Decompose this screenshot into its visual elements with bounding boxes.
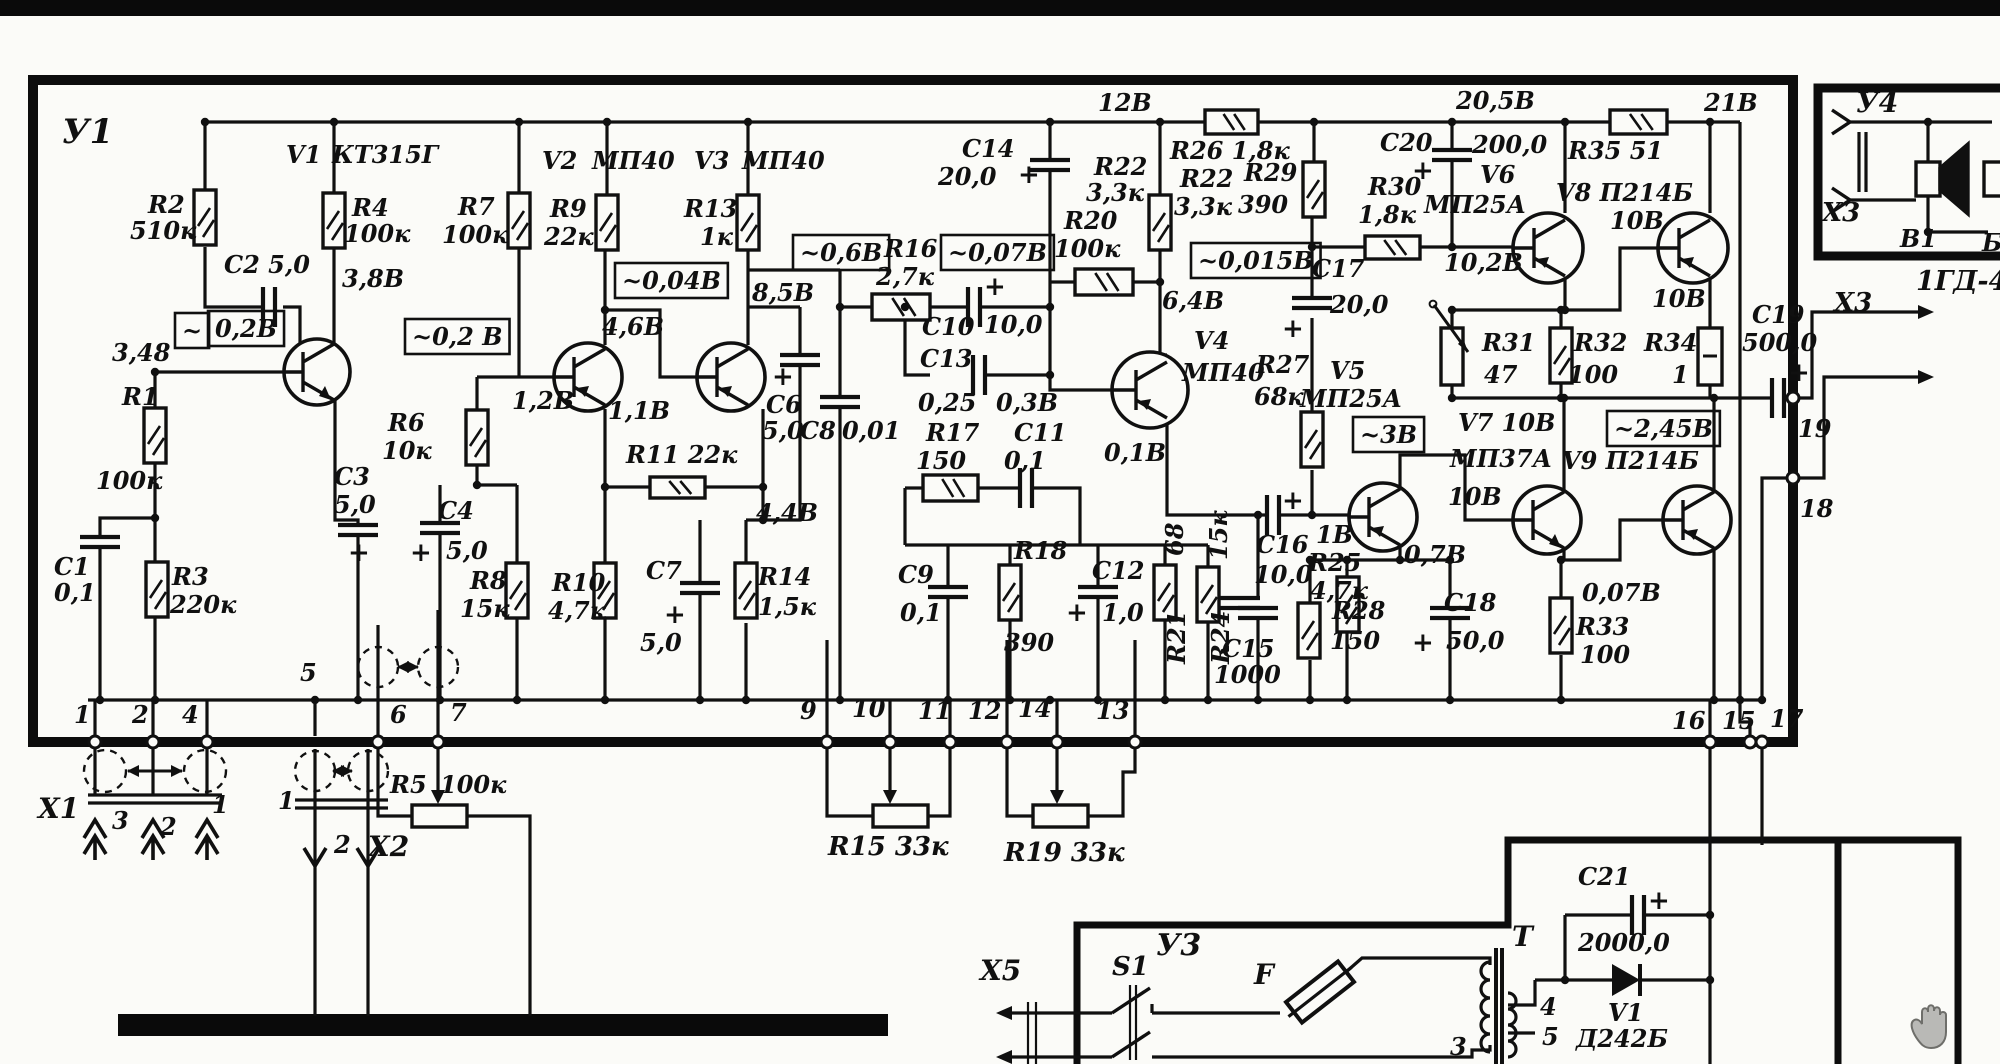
board-pin (1787, 392, 1799, 404)
schematic-label-component: 150 (1330, 626, 1380, 655)
capacitor (1772, 378, 1784, 418)
schematic-label-component: МП40 (591, 146, 675, 175)
schematic-label-component: R33 (1575, 612, 1629, 641)
junction-dot (601, 696, 609, 704)
resistor (1610, 110, 1667, 134)
schematic-label-component: R28 (1331, 596, 1386, 625)
schematic-label-pin: 7 (450, 698, 467, 727)
schematic-label-pin: 16 (1672, 706, 1706, 735)
board-pin (821, 736, 833, 748)
schematic-label-voltage: 20,5В (1455, 86, 1535, 115)
schematic-label-pin: 4 (182, 700, 199, 729)
schematic-label-component: R32 (1573, 328, 1627, 357)
mains-arrow-icon (996, 1050, 1012, 1064)
junction-dot (1156, 118, 1164, 126)
speaker-icon-2 (1984, 162, 2000, 196)
schematic-page: У1V1КТ315ГR2510кC2 5,0R4100к3,8В~0,2В3,4… (0, 0, 2000, 1064)
junction-dot (1758, 696, 1766, 704)
junction-dot (836, 696, 844, 704)
hand-cursor-icon[interactable] (1912, 1005, 1946, 1048)
diode-icon (1612, 964, 1640, 996)
connector-arrow-icons (1832, 110, 1850, 212)
schematic-label-component: C4 (438, 496, 474, 525)
junction-dot (1706, 911, 1714, 919)
schematic-label-component: 4,7к (548, 596, 607, 625)
schematic-label-component: 100 (1568, 360, 1618, 389)
schematic-label-component: 47 (1484, 360, 1518, 389)
schematic-label-component: R9 (549, 194, 587, 223)
junction-dot (1448, 394, 1456, 402)
schematic-label-polarity: + (348, 538, 370, 568)
schematic-label-polarity: + (664, 600, 686, 630)
board-pin (1001, 736, 1013, 748)
schematic-label-pin: 14 (1018, 694, 1051, 723)
junction-dot (1706, 118, 1714, 126)
schematic-label-voltage: 3,8В (342, 264, 404, 293)
schematic-label-component: 510к (130, 216, 197, 245)
schematic-label-voltage: 0,25 (918, 388, 976, 417)
schematic-label-component: 15к (460, 594, 510, 623)
schematic-label-component: 1ГД-4 (1916, 266, 2000, 297)
junction-dot (1046, 118, 1054, 126)
schematic-label-component: R14 (757, 562, 811, 591)
junction-dot (1204, 696, 1212, 704)
schematic-label-pin: 1 (212, 790, 229, 819)
board-pin (372, 736, 384, 748)
schematic-label-component: 10,0 (984, 310, 1043, 339)
schematic-label-voltage: 12В (1098, 88, 1152, 117)
schematic-label-component: 2000,0 (1577, 928, 1670, 957)
capacitor (680, 583, 720, 593)
schematic-label-voltage: 10В (1652, 284, 1706, 313)
junction-dot (201, 118, 209, 126)
junction-dot (1161, 696, 1169, 704)
junction-dot (96, 696, 104, 704)
capacitor (1432, 150, 1472, 160)
schematic-label-pin: 1 (74, 700, 91, 729)
schematic-label-component: 10,0 (1254, 560, 1313, 589)
schematic-label-component: R6 (387, 408, 425, 437)
junction-dot (436, 696, 444, 704)
schematic-label-voltage: 0,1В (1104, 438, 1166, 467)
capacitor (338, 525, 378, 535)
schematic-label-component: 150 (916, 446, 966, 475)
schematic-label-pin: 2 (159, 812, 177, 841)
board-pin (89, 736, 101, 748)
resistor (1075, 269, 1133, 295)
schematic-label-component: R18 (1013, 536, 1068, 565)
schematic-label-connector: X5 (978, 954, 1021, 987)
schematic-label-component: 68к (1254, 382, 1304, 411)
schematic-label-voltage: ~0,2 В (412, 322, 503, 351)
schematic-label-pin: 3 (1450, 1032, 1467, 1061)
schematic-label-component: C8 (800, 416, 836, 445)
schematic-label-pin: 10 (852, 694, 886, 723)
schematic-label-component: C15 (1222, 634, 1275, 663)
schematic-label-component: C11 (1014, 418, 1067, 447)
schematic-label-pin: 3 (112, 806, 129, 835)
schematic-label-component: R34 (1643, 328, 1697, 357)
schematic-label-polarity: + (1282, 486, 1304, 516)
capacitor (1078, 587, 1118, 597)
schematic-label-polarity: + (1412, 628, 1434, 658)
junction-dot (1557, 556, 1565, 564)
schematic-label-component: 100к (96, 466, 163, 495)
schematic-label-component: 68 (1160, 522, 1189, 556)
schematic-label-component: C20 (1380, 128, 1433, 157)
schematic-label-component: 1,8к (1358, 200, 1417, 229)
schematic-label-component: 1,5к (758, 592, 817, 621)
schematic-label-component: V4 (1194, 326, 1229, 355)
schematic-label-component: C13 (920, 344, 973, 373)
schematic-label-component: МП37А (1449, 444, 1552, 473)
capacitor (1292, 298, 1332, 308)
schematic-label-polarity: + (984, 272, 1006, 302)
schematic-label-component: R11 22к (625, 440, 738, 469)
signal-arrow-icon (1918, 370, 1934, 384)
schematic-label-component: C19 (1752, 300, 1805, 329)
schematic-label-polarity: + (1788, 358, 1810, 388)
schematic-label-component: 15к (1204, 510, 1233, 560)
schematic-label-component: 390 (1004, 628, 1054, 657)
schematic-label-polarity: + (1648, 886, 1670, 916)
schematic-label-polarity: + (1282, 314, 1304, 344)
schematic-label-component: 1000 (1214, 660, 1281, 689)
schematic-label-component: КТ315Г (331, 140, 440, 169)
schematic-label-component: 20,0 (937, 162, 997, 191)
junction-dot (742, 696, 750, 704)
board-pin (944, 736, 956, 748)
schematic-label-connector: X3 (1832, 288, 1872, 318)
schematic-label-component: V8 П214Б (1556, 178, 1693, 207)
board-pin (201, 736, 213, 748)
schematic-label-voltage: 10В (1448, 482, 1502, 511)
schematic-label-pin: 13 (1096, 696, 1129, 725)
schematic-label-component: C21 (1578, 862, 1631, 891)
junction-dot (1343, 696, 1351, 704)
schematic-label-component: C18 (1444, 588, 1497, 617)
schematic-label-voltage: 6,4В (1162, 286, 1224, 315)
schematic-label-component: R3 (171, 562, 209, 591)
schematic-label-voltage: ~0,015В (1198, 246, 1314, 275)
board-pin (1129, 736, 1141, 748)
speaker-icon (1916, 144, 1968, 214)
potentiometer (1033, 805, 1088, 827)
schematic-label-component: 100к (440, 770, 507, 799)
scan-top-bar (0, 0, 2000, 16)
junction-dot (1561, 976, 1569, 984)
junction-dot (473, 481, 481, 489)
capacitor (928, 587, 968, 597)
schematic-label-voltage: 1,2В (512, 386, 574, 415)
schematic-label-voltage: 0,3В (996, 388, 1058, 417)
capacitor (1220, 598, 1260, 608)
schematic-label-component: 390 (1238, 190, 1288, 219)
junction-dot (1156, 278, 1164, 286)
schematic-label-component: МП25А (1299, 384, 1402, 413)
capacitor (820, 397, 860, 407)
schematic-label-module: У4 (1856, 86, 1898, 119)
schematic-label-pin: 9 (800, 696, 817, 725)
schematic-label-component: 50,0 (1446, 626, 1505, 655)
schematic-label-component: V2 (542, 146, 577, 175)
schematic-label-component: V1 (286, 140, 321, 169)
schematic-label-pin: 15 (1722, 706, 1755, 735)
schematic-label-pin: 11 (918, 696, 951, 725)
schematic-label-component: 3,3к (1174, 192, 1233, 221)
schematic-label-component: R15 33к (827, 832, 949, 862)
schematic-label-component: R25 (1307, 548, 1361, 577)
schematic-label-component: 1 (1672, 360, 1689, 389)
junction-dot (1561, 118, 1569, 126)
schematic-label-voltage: 8,5В (751, 278, 814, 307)
schematic-label-component: R22 (1179, 164, 1233, 193)
schematic-label-component: 0,1 (1004, 446, 1046, 475)
junction-dot (311, 696, 319, 704)
schematic-label-voltage: ~0,04В (622, 266, 721, 295)
schematic-label-connector: X3 (1820, 198, 1860, 228)
schematic-label-pin: 2 (333, 830, 351, 859)
schematic-label-component: R2 (147, 190, 185, 219)
junction-dot (151, 514, 159, 522)
trimmer-resistor (1441, 328, 1463, 385)
junction-dot (1254, 696, 1262, 704)
schematic-label-component: 20,0 (1329, 290, 1389, 319)
schematic-label-voltage: 0,07В (1582, 578, 1661, 607)
mains-arrow-icon (996, 1006, 1012, 1020)
schematic-label-component: 22к (543, 222, 594, 251)
junction-dot (330, 118, 338, 126)
schematic-label-component: C7 (646, 556, 682, 585)
junction-dot (1396, 556, 1404, 564)
junction-dot (1046, 371, 1054, 379)
circuit-schematic: У1V1КТ315ГR2510кC2 5,0R4100к3,8В~0,2В3,4… (0, 0, 2000, 1064)
schematic-label-component: 5,0 (334, 490, 376, 519)
schematic-label-component: 100к (442, 220, 509, 249)
board-pin (1704, 736, 1716, 748)
junction-dot (1736, 696, 1744, 704)
capacitor (1267, 495, 1279, 535)
schematic-label-voltage: ~0,07В (948, 238, 1047, 267)
signal-arrow-icon (1918, 305, 1934, 319)
schematic-label-component: R10 (551, 568, 606, 597)
schematic-label-voltage: ~0,6В (800, 238, 882, 267)
schematic-label-component: C10 (922, 312, 975, 341)
schematic-label-polarity: + (772, 362, 794, 392)
cable-arrow-icon (196, 820, 218, 860)
schematic-label-component: R30 (1367, 172, 1422, 201)
resistor (923, 475, 978, 501)
schematic-label-pin: 5 (1542, 1022, 1559, 1051)
module-u2-top-edge (118, 1014, 888, 1036)
junction-dot (601, 483, 609, 491)
schematic-label-component: Д242Б (1575, 1024, 1668, 1053)
fuse-icon (1280, 957, 1359, 1027)
schematic-label-component: V9 П214Б (1562, 446, 1699, 475)
board-pin (147, 736, 159, 748)
junction-dot (1254, 511, 1262, 519)
junction-dot (1557, 696, 1565, 704)
schematic-label-component: R20 (1063, 206, 1118, 235)
schematic-label-component: F (1253, 958, 1276, 991)
junction-dot (1706, 976, 1714, 984)
schematic-label-component: C17 (1312, 254, 1365, 283)
cable-arrow-icon (84, 820, 106, 860)
schematic-label-component: R17 (925, 418, 980, 447)
resistor (1205, 110, 1258, 134)
board-pin (1756, 736, 1768, 748)
schematic-label-voltage: 10В (1610, 206, 1664, 235)
junction-dot (1448, 118, 1456, 126)
schematic-label-module: У3 (1156, 928, 1201, 963)
schematic-label-component: 500,0 (1742, 328, 1817, 357)
junction-dot (1006, 696, 1014, 704)
resistor (650, 477, 705, 498)
board-pin (1051, 736, 1063, 748)
schematic-label-component: C9 (898, 560, 934, 589)
schematic-label-polarity: + (1018, 160, 1040, 190)
schematic-label-component: R16 (883, 234, 938, 263)
schematic-label-component: Б (1981, 228, 2000, 257)
schematic-label-component: 200,0 (1471, 130, 1547, 159)
junction-dot (151, 696, 159, 704)
schematic-label-component: C2 5,0 (224, 250, 310, 279)
schematic-label-component: 3,3к (1086, 178, 1145, 207)
schematic-label-component: МП40 (741, 146, 825, 175)
schematic-label-component: МП40 (1181, 358, 1265, 387)
schematic-label-pin: 1 (278, 786, 295, 815)
schematic-label-pin: 6 (390, 700, 407, 729)
junction-dot (151, 368, 159, 376)
schematic-label-component: 220к (169, 590, 237, 619)
schematic-label-component: R27 (1255, 350, 1310, 379)
schematic-label-module: У1 (62, 112, 113, 152)
schematic-label-component: C12 (1092, 556, 1145, 585)
schematic-label-component: 5,0 (446, 536, 488, 565)
schematic-label-component: 1к (700, 222, 734, 251)
schematic-label-component: T (1512, 920, 1535, 953)
schematic-label-pin: 4 (1540, 992, 1557, 1021)
junction-dot (836, 303, 844, 311)
schematic-label-voltage: 4,6В (602, 312, 664, 341)
schematic-label-polarity: + (1066, 598, 1088, 628)
junction-dot (1446, 696, 1454, 704)
schematic-label-component: 100к (344, 219, 411, 248)
schematic-label-component: 100 (1580, 640, 1630, 669)
junction-dot (744, 118, 752, 126)
schematic-label-component: C16 (1256, 530, 1309, 559)
schematic-label-component: V5 (1330, 356, 1365, 385)
schematic-label-voltage: 0,2В (215, 314, 277, 343)
schematic-label-component: R7 (457, 192, 495, 221)
schematic-label-component: 100к (1054, 234, 1121, 263)
schematic-label-pin: 19 (1798, 414, 1832, 443)
schematic-label-connector: X2 (366, 830, 409, 863)
junction-dot (515, 118, 523, 126)
schematic-label-pin: 18 (1800, 494, 1834, 523)
schematic-label-component: B1 (1899, 224, 1937, 253)
schematic-label-component: R35 51 (1567, 136, 1663, 165)
junction-dot (1306, 696, 1314, 704)
schematic-label-voltage: 0,7В (1404, 540, 1466, 569)
shield-ring-icon (84, 750, 126, 792)
schematic-label-component: 0,1 (54, 578, 96, 607)
schematic-label-pin: 5 (300, 658, 317, 687)
schematic-label-component: C3 (334, 462, 370, 491)
junction-dot (1710, 394, 1718, 402)
junction-dot (1448, 306, 1456, 314)
schematic-label-polarity: + (410, 538, 432, 568)
junction-dot (1710, 696, 1718, 704)
schematic-label-component: R22 (1093, 152, 1147, 181)
schematic-label-component: R5 (389, 770, 427, 799)
schematic-label-component: R19 33к (1003, 838, 1125, 868)
junction-dot (513, 696, 521, 704)
junction-dot (1561, 306, 1569, 314)
schematic-label-component: R31 (1481, 328, 1535, 357)
schematic-label-component: C1 (54, 552, 90, 581)
schematic-label-component: S1 (1112, 952, 1149, 982)
schematic-label-voltage: 21В (1703, 88, 1758, 117)
junction-dot (1046, 303, 1054, 311)
schematic-label-component: C14 (962, 134, 1015, 163)
capacitor (80, 537, 120, 547)
schematic-label-pin: 12 (968, 696, 1001, 725)
junction-dot (603, 118, 611, 126)
schematic-label-voltage: 3,48 (112, 338, 171, 367)
potentiometer (412, 805, 467, 827)
board-pin (1787, 472, 1799, 484)
schematic-label-component: 5,0 (640, 628, 682, 657)
schematic-label-component: V6 (1480, 160, 1516, 189)
shield-ring-icon (184, 750, 226, 792)
schematic-label-component: R8 (469, 566, 507, 595)
schematic-label-component: V3 (694, 146, 729, 175)
schematic-label-component: 0,1 (900, 598, 942, 627)
schematic-label-component: R4 (351, 193, 389, 222)
junction-dot (696, 696, 704, 704)
schematic-label-voltage: 1,1В (608, 396, 670, 425)
junction-dot (1924, 118, 1932, 126)
schematic-label-component: V7 10В (1458, 408, 1555, 437)
schematic-label-component: R29 (1243, 158, 1298, 187)
schematic-label-component: 1,0 (1102, 598, 1144, 627)
board-pin (884, 736, 896, 748)
schematic-label-voltage: 10,2В (1444, 248, 1523, 277)
schematic-label-component: 0,01 (842, 416, 900, 445)
schematic-label-voltage: 1В (1316, 520, 1353, 549)
schematic-label-component: МП25А (1423, 190, 1526, 219)
schematic-label-component: R21 (1162, 611, 1191, 665)
schematic-label-pin: 2 (131, 700, 149, 729)
junction-dot (1308, 511, 1316, 519)
junction-dot (1310, 118, 1318, 126)
schematic-label-voltage: ~2,45В (1614, 414, 1713, 443)
schematic-label-component: 10к (382, 436, 432, 465)
junction-dot (901, 303, 909, 311)
schematic-label-connector: X1 (36, 792, 79, 825)
schematic-label-component: R1 (121, 382, 159, 411)
schematic-label-component: С6 (766, 390, 802, 419)
resistor (1365, 236, 1420, 259)
schematic-label-voltage: 4,4В (756, 498, 818, 527)
board-pin (1744, 736, 1756, 748)
schematic-label-voltage: ~3В (1360, 420, 1417, 449)
schematic-label-component: R13 (683, 194, 737, 223)
board-pin (432, 736, 444, 748)
schematic-label-pin: 17 (1770, 704, 1804, 733)
junction-dot (759, 483, 767, 491)
